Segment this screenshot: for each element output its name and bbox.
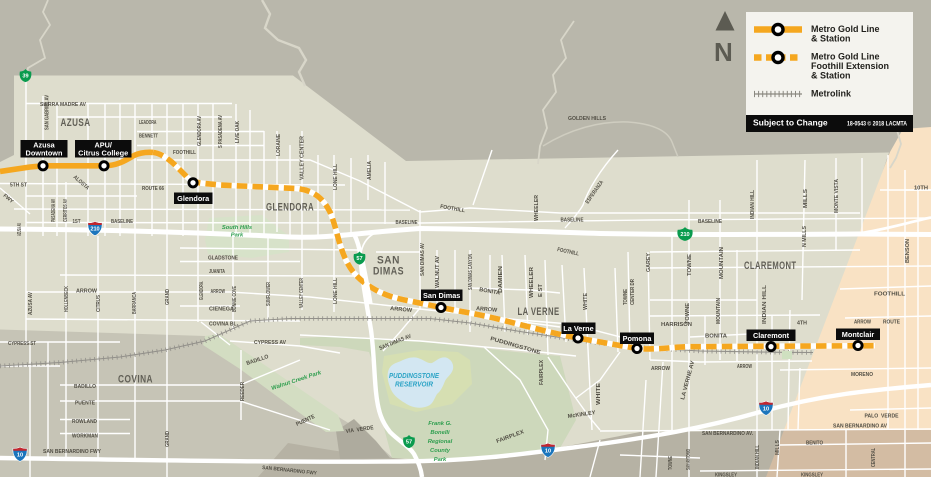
svg-text:LONE HILL: LONE HILL	[333, 277, 339, 304]
svg-text:BASELINE: BASELINE	[698, 219, 722, 225]
svg-text:BENSON: BENSON	[905, 239, 911, 263]
svg-text:S PASADENA AV: S PASADENA AV	[218, 115, 224, 148]
svg-text:57: 57	[406, 440, 412, 446]
svg-text:VALLEY CENTER: VALLEY CENTER	[300, 136, 306, 180]
svg-text:GOLDEN HILLS: GOLDEN HILLS	[568, 116, 607, 122]
svg-text:BASELINE: BASELINE	[111, 219, 133, 225]
svg-text:WALNUT AV: WALNUT AV	[435, 256, 441, 288]
svg-text:N: N	[714, 37, 733, 67]
svg-text:BONNIE COVE: BONNIE COVE	[232, 286, 238, 312]
svg-text:210: 210	[680, 232, 689, 238]
svg-text:ARROW: ARROW	[211, 289, 226, 295]
svg-text:Park: Park	[434, 457, 447, 463]
svg-text:AMELIA: AMELIA	[367, 161, 373, 180]
svg-text:Downtown: Downtown	[26, 148, 63, 157]
svg-text:COVINA BL.: COVINA BL.	[209, 322, 238, 328]
svg-text:WORKMAN: WORKMAN	[72, 434, 98, 440]
svg-text:AZUSA AV: AZUSA AV	[28, 292, 34, 315]
svg-text:South Hills: South Hills	[222, 225, 253, 231]
svg-text:1ST: 1ST	[73, 219, 81, 225]
svg-text:County: County	[430, 448, 451, 454]
svg-text:CERRITOS AV: CERRITOS AV	[63, 199, 69, 222]
svg-text:Frank G.: Frank G.	[428, 421, 452, 427]
svg-text:La Verne: La Verne	[563, 324, 593, 333]
svg-text:BENITO: BENITO	[806, 441, 824, 447]
svg-text:SAN ANTONIO: SAN ANTONIO	[686, 449, 692, 470]
svg-text:Montclair: Montclair	[842, 330, 875, 339]
svg-text:ARROW: ARROW	[854, 320, 872, 326]
svg-text:Park: Park	[231, 233, 244, 239]
svg-text:CYPRESS AV: CYPRESS AV	[254, 340, 286, 346]
svg-text:San Dimas: San Dimas	[423, 291, 460, 300]
svg-text:Regional: Regional	[428, 439, 453, 445]
svg-text:GLENDORA.: GLENDORA.	[199, 281, 205, 300]
svg-text:FAIRPLEX: FAIRPLEX	[539, 360, 545, 385]
svg-text:57: 57	[356, 256, 362, 262]
svg-text:ROUTE: ROUTE	[883, 320, 900, 326]
svg-text:GLENDORA AV: GLENDORA AV	[197, 116, 203, 146]
svg-text:PALO VERDE: PALO VERDE	[865, 414, 899, 420]
svg-text:BARRANCA: BARRANCA	[132, 292, 138, 314]
svg-text:Metro Gold Line: Metro Gold Line	[811, 52, 880, 62]
svg-text:RESERVOIR: RESERVOIR	[395, 382, 433, 389]
svg-text:DAMIEN: DAMIEN	[498, 266, 504, 293]
svg-text:BENNETT: BENNETT	[139, 134, 158, 140]
svg-text:Citrus College: Citrus College	[78, 148, 128, 157]
svg-text:LORAINE: LORAINE	[276, 134, 282, 156]
svg-text:TOWNE: TOWNE	[685, 303, 691, 324]
svg-text:10TH: 10TH	[914, 186, 928, 192]
svg-text:Pomona: Pomona	[623, 334, 653, 343]
svg-text:AZUSA AV: AZUSA AV	[17, 223, 23, 236]
svg-text:& Station: & Station	[811, 34, 851, 44]
svg-text:KINGSLEY: KINGSLEY	[715, 473, 737, 477]
svg-text:PUENTE: PUENTE	[75, 401, 95, 407]
svg-text:210: 210	[90, 227, 99, 233]
svg-text:MONTE VISTA: MONTE VISTA	[834, 179, 840, 213]
svg-text:COVINA: COVINA	[118, 374, 153, 386]
svg-text:Glendora: Glendora	[177, 194, 210, 203]
svg-text:Metrolink: Metrolink	[811, 89, 852, 99]
svg-text:Bonelli: Bonelli	[430, 430, 450, 436]
svg-text:HOLLENBECK: HOLLENBECK	[64, 286, 70, 312]
svg-text:WHITE: WHITE	[583, 293, 589, 310]
svg-text:GRAND: GRAND	[165, 289, 171, 305]
svg-text:TOWNE: TOWNE	[687, 254, 693, 276]
svg-text:WHEELER: WHEELER	[534, 195, 540, 221]
svg-text:CIENEGA: CIENEGA	[209, 307, 234, 313]
svg-text:REEDER: REEDER	[240, 382, 246, 401]
svg-text:FOOTHILL: FOOTHILL	[173, 150, 196, 156]
svg-text:VALLEY CENTER: VALLEY CENTER	[299, 278, 305, 308]
svg-text:AZUSA: AZUSA	[61, 117, 91, 129]
svg-text:CENTER DR: CENTER DR	[630, 279, 636, 305]
svg-text:SUNFLOWER: SUNFLOWER	[266, 282, 272, 306]
svg-text:BASELINE: BASELINE	[561, 218, 584, 224]
svg-text:WHEELER: WHEELER	[529, 267, 535, 298]
svg-text:WHITE: WHITE	[596, 383, 602, 405]
svg-text:10: 10	[545, 448, 551, 454]
svg-text:PASADENA AV: PASADENA AV	[51, 199, 57, 222]
svg-text:LEADORA: LEADORA	[139, 120, 157, 126]
svg-text:CYPRESS ST: CYPRESS ST	[8, 341, 36, 347]
svg-text:SAN BERNARDINO AV.: SAN BERNARDINO AV.	[702, 431, 753, 437]
svg-text:GRAND: GRAND	[165, 431, 171, 447]
svg-text:CLAREMONT: CLAREMONT	[744, 260, 797, 272]
svg-text:5TH ST: 5TH ST	[10, 183, 28, 189]
svg-text:LA VERNE: LA VERNE	[518, 306, 560, 318]
svg-text:PUDDINGSTONE: PUDDINGSTONE	[389, 373, 439, 380]
svg-text:SAN DIMAS AV: SAN DIMAS AV	[420, 243, 426, 276]
svg-text:SAN GABRIEL AV: SAN GABRIEL AV	[45, 95, 51, 130]
svg-text:BONITA: BONITA	[705, 334, 727, 340]
svg-text:JUANITA: JUANITA	[209, 269, 225, 275]
svg-text:GAREY: GAREY	[646, 253, 652, 272]
svg-text:LONE HILL: LONE HILL	[333, 163, 339, 190]
svg-text:ROUTE 66: ROUTE 66	[142, 186, 164, 192]
svg-text:TOWNE: TOWNE	[623, 289, 629, 305]
svg-text:Foothill Extension: Foothill Extension	[811, 61, 889, 71]
svg-text:ROWLAND: ROWLAND	[72, 419, 97, 425]
svg-text:MILLS: MILLS	[775, 439, 781, 455]
svg-text:Subject to Change: Subject to Change	[753, 118, 828, 128]
svg-text:Claremont: Claremont	[753, 331, 790, 340]
svg-text:SAN BERNARDINO AV: SAN BERNARDINO AV	[833, 424, 888, 430]
svg-text:CITRUS: CITRUS	[96, 295, 102, 312]
svg-text:N MILLS: N MILLS	[802, 226, 808, 247]
svg-text:MOUNTAIN: MOUNTAIN	[716, 298, 722, 324]
svg-text:INDIAN HILL: INDIAN HILL	[750, 189, 756, 219]
svg-text:ARROW: ARROW	[76, 289, 98, 295]
svg-text:TOWNE: TOWNE	[668, 456, 674, 470]
svg-text:& Station: & Station	[811, 71, 851, 81]
svg-text:INDIAN HILL: INDIAN HILL	[762, 284, 768, 324]
svg-text:MOUNTAIN: MOUNTAIN	[719, 247, 725, 279]
svg-text:INDIAN HILL: INDIAN HILL	[755, 444, 761, 469]
svg-text:DIMAS: DIMAS	[373, 266, 404, 278]
svg-text:18-0543 © 2018 LACMTA: 18-0543 © 2018 LACMTA	[847, 121, 908, 128]
svg-text:4TH: 4TH	[797, 321, 807, 327]
svg-text:10: 10	[17, 452, 23, 458]
svg-text:MORENO: MORENO	[851, 372, 874, 378]
svg-text:39: 39	[22, 74, 28, 80]
svg-text:SAN BERNARDINO FWY: SAN BERNARDINO FWY	[43, 449, 102, 455]
svg-text:E ST: E ST	[538, 283, 544, 297]
svg-text:LIVE OAK: LIVE OAK	[235, 121, 241, 143]
svg-text:KINGSLEY: KINGSLEY	[801, 473, 823, 477]
svg-text:FOOTHILL: FOOTHILL	[874, 292, 906, 298]
svg-text:BASELINE: BASELINE	[396, 220, 418, 226]
svg-text:BADILLO: BADILLO	[74, 384, 97, 390]
svg-text:Metro Gold Line: Metro Gold Line	[811, 24, 880, 34]
svg-text:GLADSTONE: GLADSTONE	[208, 256, 238, 262]
svg-text:GLENDORA: GLENDORA	[266, 202, 314, 214]
svg-text:ARROW: ARROW	[737, 364, 752, 370]
svg-text:MILLS: MILLS	[803, 189, 809, 208]
svg-text:SAN DIMAS CANYON: SAN DIMAS CANYON	[468, 254, 474, 290]
svg-text:ARROW: ARROW	[651, 366, 671, 372]
svg-text:CENTRAL: CENTRAL	[871, 448, 877, 467]
svg-text:10: 10	[763, 406, 769, 412]
